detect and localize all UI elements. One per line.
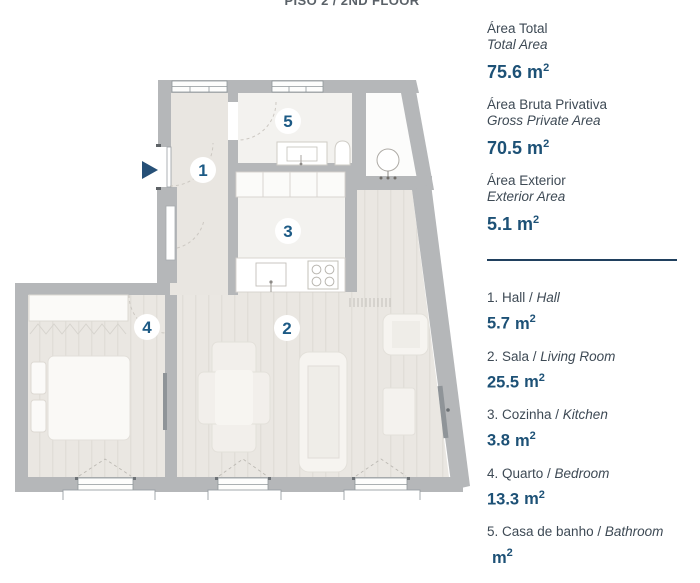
bathroom-vanity <box>277 142 327 165</box>
window-top-bathroom <box>272 81 323 92</box>
kitchen-hob <box>308 261 338 289</box>
bedroom-wall-door-panel <box>163 373 167 430</box>
room-list-item-living: 2. Sala / Living Room 25.5m2 <box>487 349 687 393</box>
panel-divider <box>487 259 677 261</box>
room-item-value: 25.5m2 <box>487 368 687 393</box>
room-item-value: 13.3m2 <box>487 485 687 510</box>
room-item-label: 1. Hall / Hall <box>487 290 687 306</box>
summary-value: 70.5m2 <box>487 133 687 159</box>
armchair <box>383 314 428 355</box>
side-table <box>383 388 415 435</box>
window-sills <box>63 490 420 500</box>
summary-label-pt: Área Bruta Privativa <box>487 97 687 113</box>
summary-value: 75.6m2 <box>487 57 687 83</box>
room-list-item-kitchen: 3. Cozinha / Kitchen 3.8m2 <box>487 407 687 451</box>
summary-label-en: Gross Private Area <box>487 113 687 129</box>
room-list-item-hall: 1. Hall / Hall 5.7m2 <box>487 290 687 334</box>
room-list-item-bathroom: 5. Casa de banho / Bathroom m2 <box>487 524 687 568</box>
room-list-item-bedroom: 4. Quarto / Bedroom 13.3m2 <box>487 466 687 510</box>
room-item-value: m2 <box>487 543 687 568</box>
room-item-value: 3.8m2 <box>487 426 687 451</box>
room-item-label: 2. Sala / Living Room <box>487 349 687 365</box>
room-hall-floor <box>170 93 228 300</box>
hall-wall-niche <box>166 206 175 260</box>
summary-value: 5.1m2 <box>487 209 687 235</box>
entrance-arrow-icon <box>142 161 158 179</box>
summary-label-en: Total Area <box>487 37 687 53</box>
svg-text:2: 2 <box>282 319 291 338</box>
room-list: 1. Hall / Hall 5.7m2 2. Sala / Living Ro… <box>487 290 687 568</box>
floor-plan: 1 5 3 2 4 <box>0 0 470 500</box>
summary-label-pt: Área Total <box>487 21 687 37</box>
bathroom-toilet <box>335 141 350 165</box>
room-label-kitchen: 3 <box>275 218 301 244</box>
room-label-bathroom: 5 <box>275 108 301 134</box>
room-label-hall: 1 <box>190 157 216 183</box>
svg-text:1: 1 <box>198 161 207 180</box>
room-item-label: 4. Quarto / Bedroom <box>487 466 687 482</box>
kitchen-cabinets <box>236 172 345 197</box>
window-top-hall <box>172 81 227 92</box>
area-info-panel: Área Total Total Area 75.6m2 Área Bruta … <box>487 21 687 583</box>
room-label-bedroom: 4 <box>134 314 160 340</box>
room-item-label: 3. Cozinha / Kitchen <box>487 407 687 423</box>
sofa <box>299 352 347 472</box>
summary-exterior-area: Área Exterior Exterior Area 5.1m2 <box>487 173 687 235</box>
summary-gross-private-area: Área Bruta Privativa Gross Private Area … <box>487 97 687 159</box>
summary-label-en: Exterior Area <box>487 189 687 205</box>
summary-label-pt: Área Exterior <box>487 173 687 189</box>
room-item-label: 5. Casa de banho / Bathroom <box>487 524 687 540</box>
svg-text:3: 3 <box>283 222 292 241</box>
room-item-value: 5.7m2 <box>487 309 687 334</box>
room-label-living: 2 <box>274 315 300 341</box>
svg-text:5: 5 <box>283 112 292 131</box>
svg-text:4: 4 <box>142 318 152 337</box>
summary-total-area: Área Total Total Area 75.6m2 <box>487 21 687 83</box>
